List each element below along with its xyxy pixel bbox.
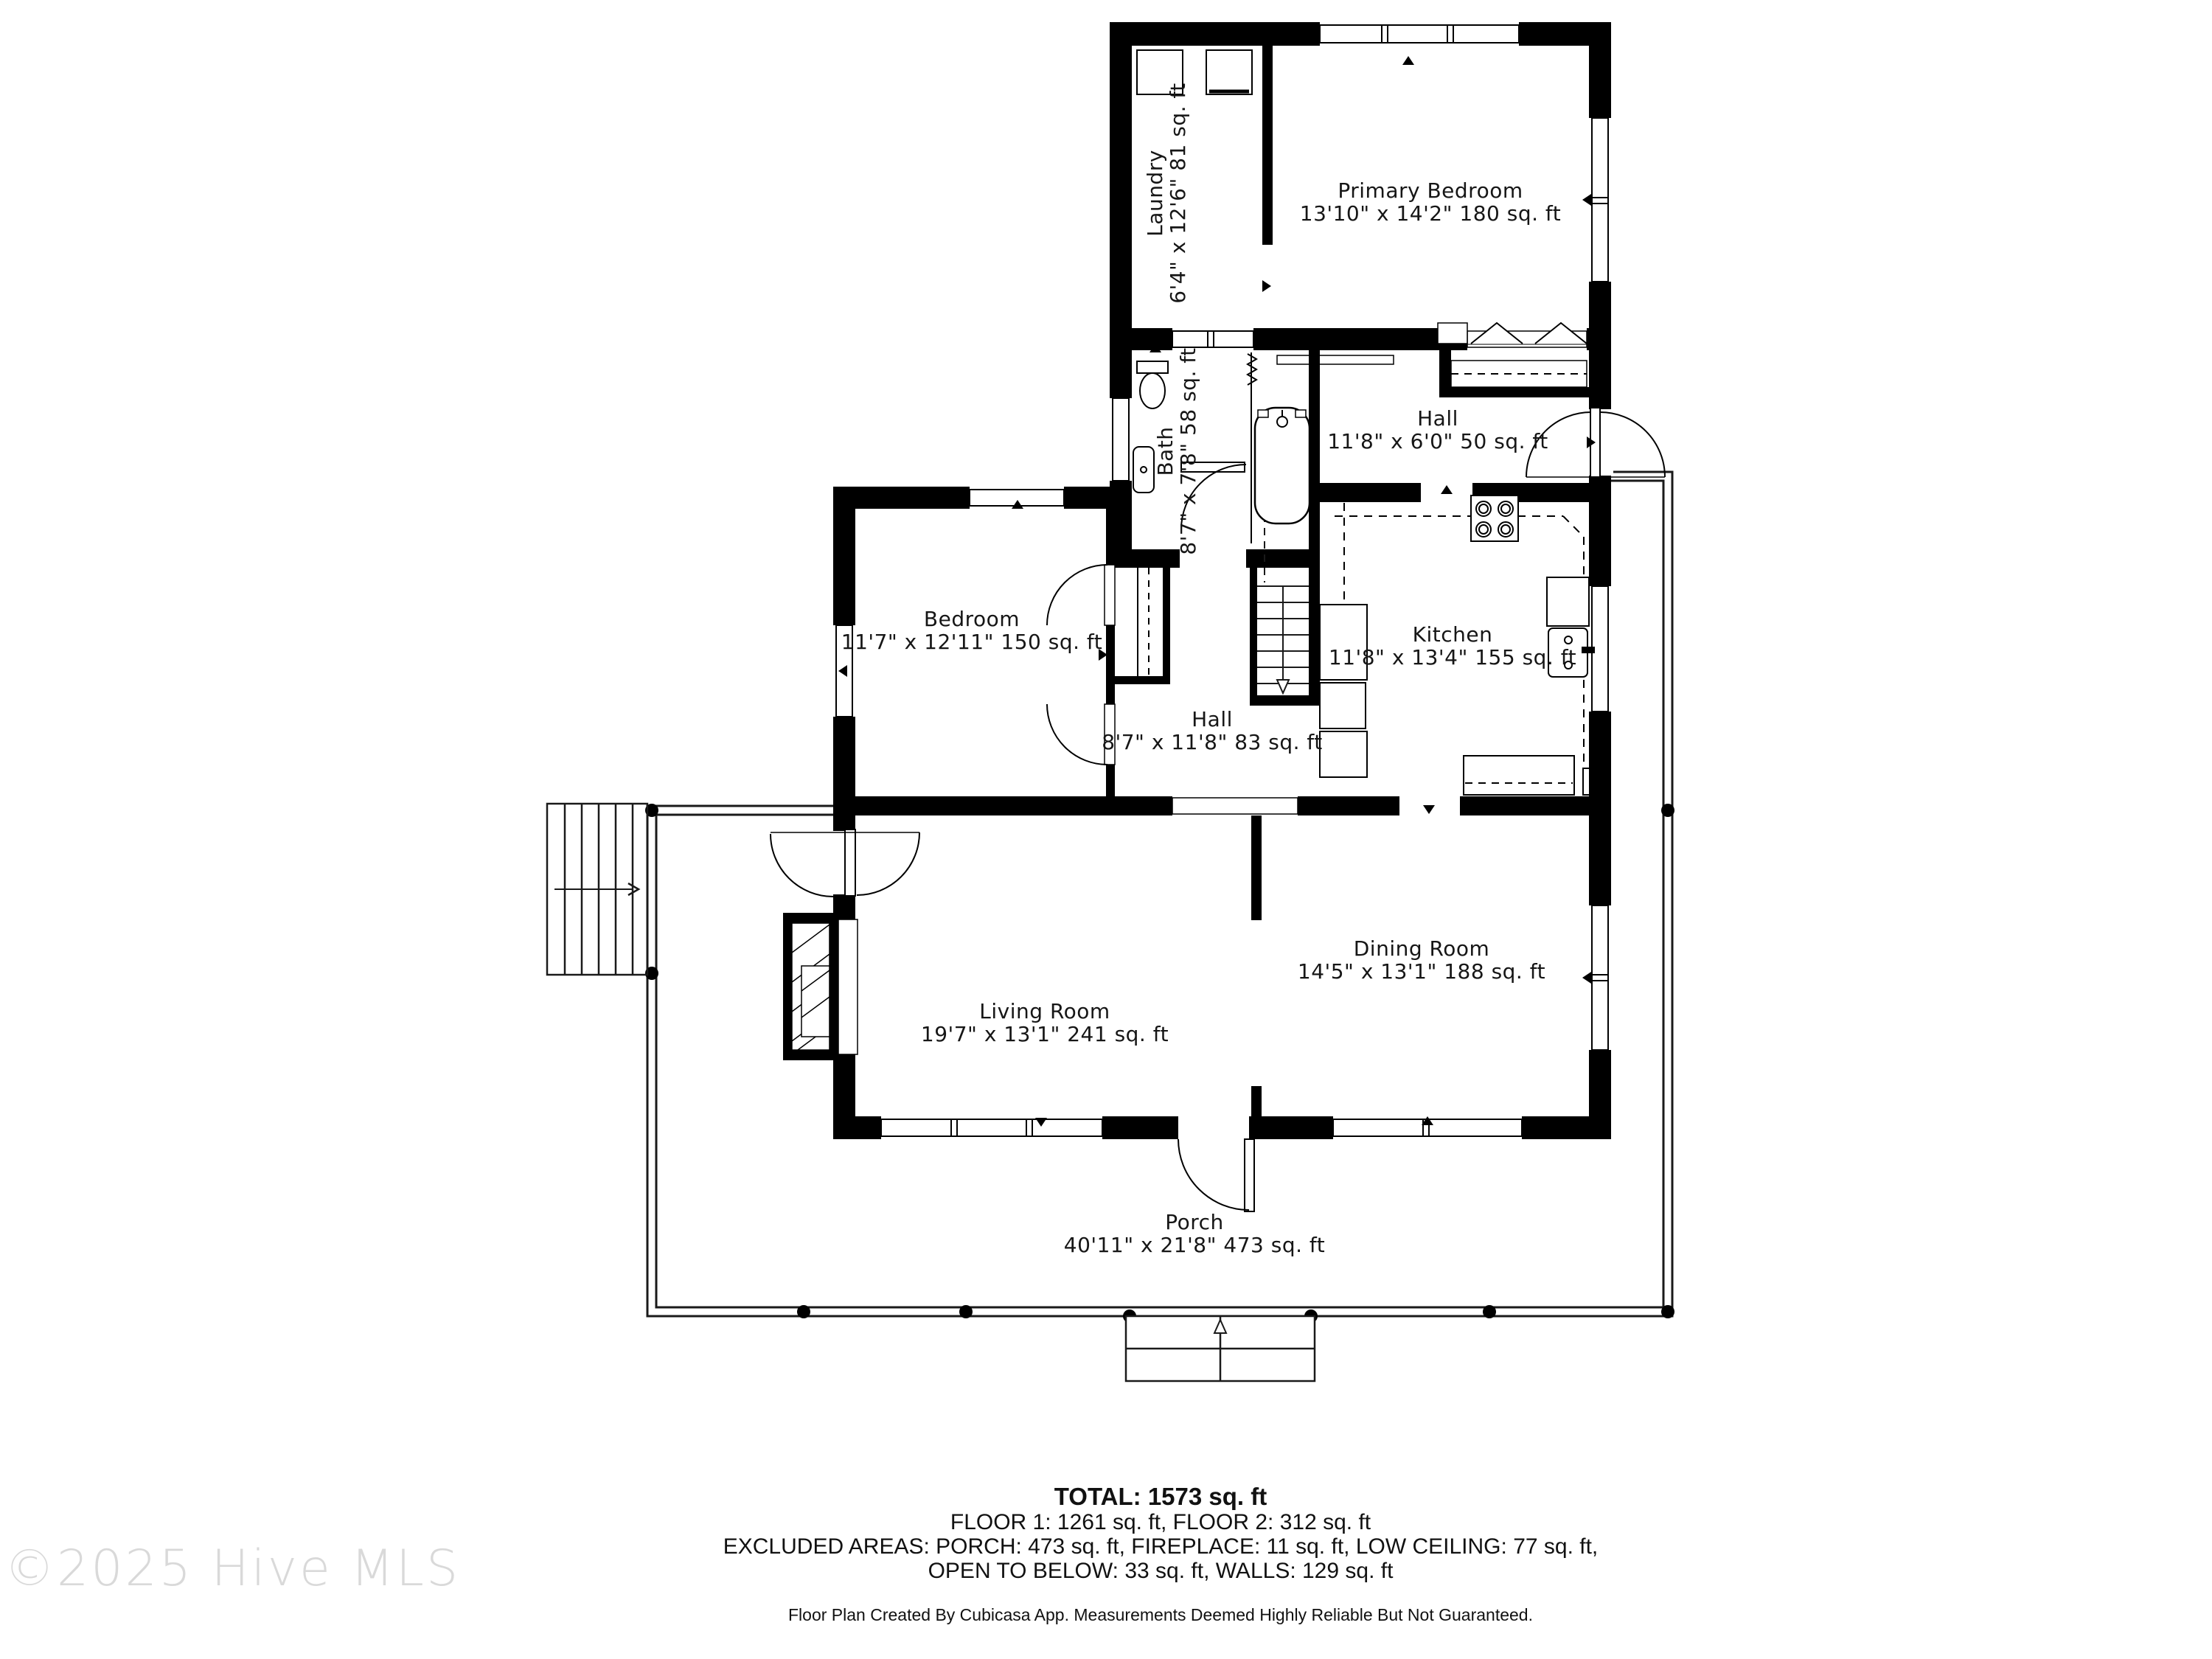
room-name: Dining Room — [1298, 937, 1545, 960]
summary-total: TOTAL: 1573 sq. ft — [723, 1484, 1599, 1510]
room-label-bath: Bath 8'7" x 7'8" 58 sq. ft — [1154, 347, 1200, 554]
window-living-bottom — [881, 1119, 1102, 1136]
watermark: ©2025 Hive MLS — [4, 1540, 460, 1598]
summary-excluded1: EXCLUDED AREAS: PORCH: 473 sq. ft, FIREP… — [723, 1534, 1599, 1559]
summary-excluded2: OPEN TO BELOW: 33 sq. ft, WALLS: 129 sq.… — [723, 1559, 1599, 1583]
summary-disclaimer: Floor Plan Created By Cubicasa App. Meas… — [723, 1605, 1599, 1624]
floorplan-svg — [0, 0, 2212, 1659]
porch-front-steps — [1126, 1316, 1315, 1381]
room-label-living-room: Living Room 19'7" x 13'1" 241 sq. ft — [921, 1000, 1169, 1046]
room-label-hall-middle: Hall 8'7" x 11'8" 83 sq. ft — [1102, 708, 1323, 754]
bathtub-icon — [1251, 352, 1310, 543]
floorplan-page: { "watermark": "©2025 Hive MLS", "rooms"… — [0, 0, 2212, 1659]
living-porch-door — [771, 829, 919, 897]
window-primary-top — [1320, 25, 1519, 43]
room-label-laundry: Laundry 6'4" x 12'6" 81 sq. ft — [1144, 83, 1189, 304]
room-dims: 40'11" x 21'8" 473 sq. ft — [1064, 1234, 1325, 1256]
room-name: Living Room — [921, 1000, 1169, 1023]
room-name: Bedroom — [841, 608, 1102, 630]
dryer-icon — [1206, 50, 1252, 94]
front-door — [1178, 1139, 1254, 1211]
bath-sink-icon — [1133, 447, 1154, 493]
window-landing — [1172, 331, 1253, 347]
bedroom-closet — [1138, 568, 1149, 676]
landing-shelf — [1277, 355, 1394, 364]
room-label-bedroom: Bedroom 11'7" x 12'11" 150 sq. ft — [841, 608, 1102, 653]
room-name: Laundry — [1144, 83, 1166, 304]
room-label-primary-bedroom: Primary Bedroom 13'10" x 14'2" 180 sq. f… — [1300, 179, 1561, 225]
room-dims: 8'7" x 11'8" 83 sq. ft — [1102, 731, 1323, 754]
room-label-kitchen: Kitchen 11'8" x 13'4" 155 sq. ft — [1329, 623, 1576, 669]
room-label-hall-upper: Hall 11'8" x 6'0" 50 sq. ft — [1327, 407, 1548, 453]
room-name: Kitchen — [1329, 623, 1576, 646]
porch-outline — [647, 472, 1672, 1316]
porch-side-stairs — [547, 804, 647, 975]
room-name: Hall — [1327, 407, 1548, 430]
stove-icon — [1471, 495, 1518, 541]
room-name: Bath — [1154, 347, 1177, 554]
room-name: Hall — [1102, 708, 1323, 731]
summary-floors: FLOOR 1: 1261 sq. ft, FLOOR 2: 312 sq. f… — [723, 1510, 1599, 1534]
window-primary-right — [1592, 118, 1608, 282]
window-bath-left — [1113, 398, 1129, 481]
room-label-porch: Porch 40'11" x 21'8" 473 sq. ft — [1064, 1211, 1325, 1256]
cased-opening — [1172, 798, 1298, 814]
room-name: Porch — [1064, 1211, 1325, 1234]
fireplace-icon — [792, 919, 858, 1054]
room-dims: 6'4" x 12'6" 81 sq. ft — [1166, 83, 1189, 304]
room-dims: 11'8" x 13'4" 155 sq. ft — [1329, 646, 1576, 669]
room-dims: 13'10" x 14'2" 180 sq. ft — [1300, 202, 1561, 225]
room-dims: 11'7" x 12'11" 150 sq. ft — [841, 630, 1102, 653]
room-dims: 8'7" x 7'8" 58 sq. ft — [1177, 347, 1200, 554]
area-summary: TOTAL: 1573 sq. ft FLOOR 1: 1261 sq. ft,… — [723, 1484, 1599, 1624]
window-dining-right — [1592, 905, 1608, 1050]
room-name: Primary Bedroom — [1300, 179, 1561, 202]
room-label-dining-room: Dining Room 14'5" x 13'1" 188 sq. ft — [1298, 937, 1545, 983]
room-dims: 14'5" x 13'1" 188 sq. ft — [1298, 960, 1545, 983]
hall-closet-shelf — [1451, 361, 1587, 387]
room-dims: 19'7" x 13'1" 241 sq. ft — [921, 1023, 1169, 1046]
room-dims: 11'8" x 6'0" 50 sq. ft — [1327, 430, 1548, 453]
